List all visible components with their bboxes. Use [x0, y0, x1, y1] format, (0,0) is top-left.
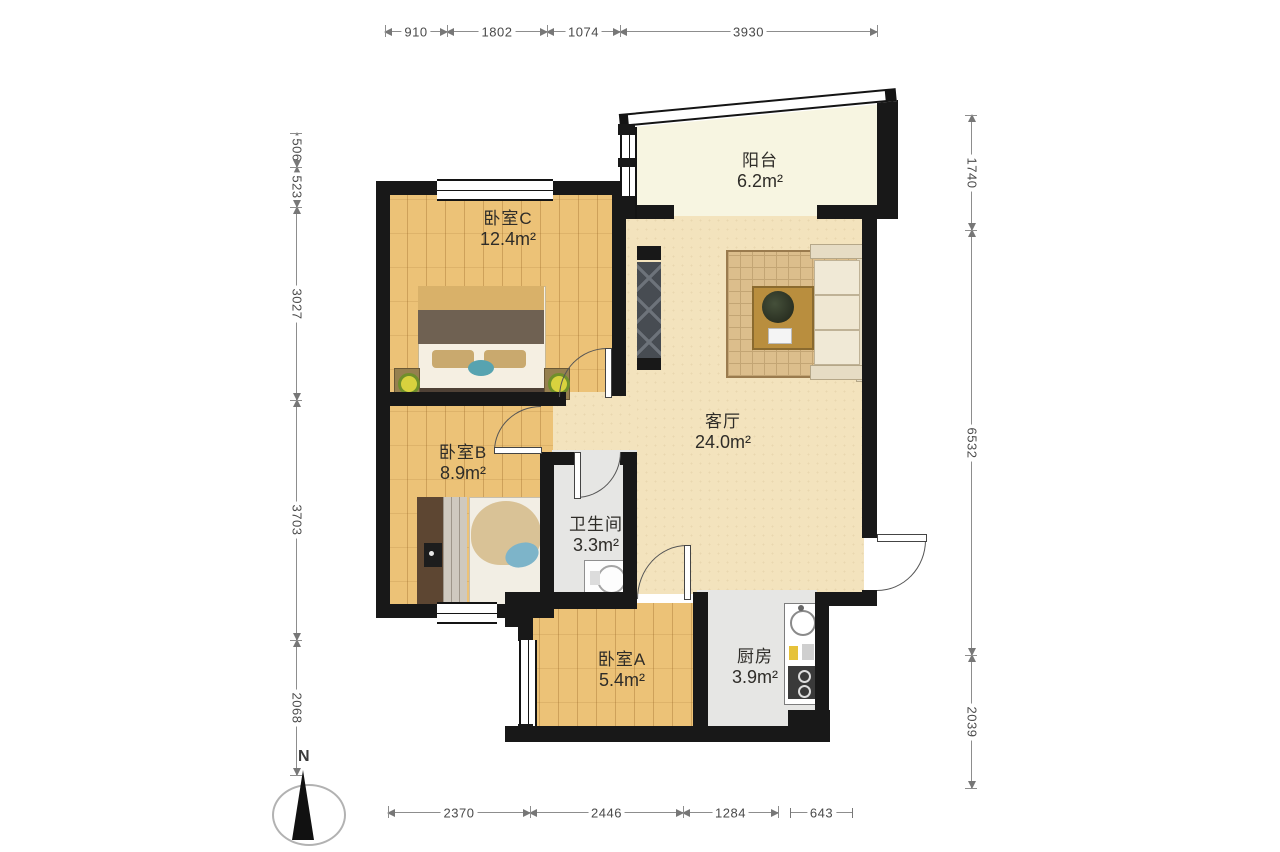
floor-plan: 阳台 6.2m² 卧室C 12.4m² 客厅 24.0m² 卧室B 8.9m² … — [0, 0, 1280, 852]
dim-left-3: 3027 — [296, 207, 297, 400]
dim-tick — [965, 115, 977, 116]
dim-label: 1802 — [479, 25, 516, 40]
wall-bath-top-left — [540, 452, 574, 465]
dim-top-2: 1802 — [447, 31, 547, 32]
wall-bedc-bottom — [376, 392, 566, 406]
decor — [468, 360, 494, 376]
wall-bath-right — [623, 452, 637, 609]
room-name: 客厅 — [695, 407, 751, 432]
entry-door-arc — [877, 540, 926, 591]
dim-right-3: 2039 — [971, 655, 972, 788]
dim-label: 643 — [807, 806, 836, 821]
decor — [810, 244, 864, 259]
dim-right-2: 6532 — [971, 230, 972, 655]
room-label-balcony: 阳台 6.2m² — [737, 146, 783, 192]
room-name: 卧室C — [480, 204, 536, 229]
dim-tick — [290, 167, 302, 168]
compass: N — [270, 748, 344, 846]
dim-tick — [778, 806, 779, 818]
room-area: 5.4m² — [598, 670, 646, 691]
dim-tick — [547, 25, 548, 37]
decor — [802, 644, 814, 660]
dim-bottom-3: 1284 — [683, 812, 778, 813]
dim-tick — [388, 806, 389, 818]
room-area: 6.2m² — [737, 171, 783, 192]
wall-bedc-top-left — [376, 181, 437, 195]
dim-tick — [290, 133, 302, 134]
room-area: 12.4m² — [480, 229, 536, 250]
room-name: 阳台 — [737, 146, 783, 171]
room-area: 24.0m² — [695, 432, 751, 453]
decor — [798, 685, 811, 698]
wall-living-right — [862, 205, 877, 538]
wall-kitchen-right — [815, 592, 829, 714]
wall-living-top-left-seg — [634, 205, 674, 219]
wall-bedb-right-stub — [540, 392, 554, 406]
room-label-bedroom-b: 卧室B 8.9m² — [439, 438, 487, 484]
dim-bottom-2: 2446 — [530, 812, 683, 813]
compass-label-north: N — [298, 748, 310, 766]
balcony-window-cap-mid — [618, 158, 635, 167]
tv-wall-pier-bottom — [637, 358, 661, 370]
room-label-bathroom: 卫生间 3.3m² — [569, 510, 623, 556]
dim-tick — [447, 25, 448, 37]
dim-label: 1740 — [965, 154, 980, 191]
dim-label: 6532 — [965, 424, 980, 461]
decor — [590, 571, 600, 585]
dim-label: 2039 — [965, 703, 980, 740]
wall-living-right-lower — [862, 590, 877, 606]
dim-bottom-1: 2370 — [388, 812, 530, 813]
wall-kitchen-bottom — [693, 726, 793, 742]
plant — [762, 291, 794, 323]
bedroom-a-door-leaf — [684, 545, 691, 600]
room-area: 3.3m² — [569, 535, 623, 556]
dim-label: 3703 — [290, 502, 305, 539]
wall-beda-left-upper — [518, 605, 533, 641]
balcony-window-cap-bottom — [618, 196, 635, 219]
dim-tick — [965, 788, 977, 789]
room-label-bedroom-a: 卧室A 5.4m² — [598, 645, 646, 691]
bedroom-a-window — [519, 640, 537, 726]
table-tray — [768, 328, 792, 344]
tv-cabinet — [637, 262, 661, 358]
bedroom-b-door-leaf — [494, 447, 542, 454]
dim-label: 2068 — [290, 689, 305, 726]
tv-wall-pier-top — [637, 246, 661, 260]
bedroom-c-door-leaf — [605, 348, 612, 398]
dim-label: 2370 — [441, 806, 478, 821]
dim-tick — [965, 655, 977, 656]
room-area: 8.9m² — [439, 463, 487, 484]
dim-label: 506 — [290, 135, 305, 164]
dim-label: 3027 — [290, 285, 305, 322]
wall-beda-bottom — [505, 726, 698, 742]
decor — [814, 260, 860, 295]
dim-tick — [965, 230, 977, 231]
dim-label: 910 — [401, 25, 430, 40]
decor — [597, 565, 626, 594]
dim-tick — [290, 207, 302, 208]
bedroom-c-window — [437, 179, 553, 201]
room-label-bedroom-c: 卧室C 12.4m² — [480, 204, 536, 250]
stove — [788, 666, 816, 699]
dim-tick — [877, 25, 878, 37]
dim-top-4: 3930 — [620, 31, 877, 32]
bedroom-c-bed — [418, 286, 544, 404]
room-name: 厨房 — [732, 642, 778, 667]
wall-kitchen-left — [693, 592, 708, 742]
dim-tick — [683, 806, 684, 818]
decor — [810, 365, 864, 380]
dim-tick — [290, 640, 302, 641]
dim-label: 2446 — [588, 806, 625, 821]
dim-label: 1074 — [565, 25, 602, 40]
sink — [790, 610, 816, 636]
decor — [418, 310, 544, 344]
decor — [789, 646, 798, 660]
room-name: 卧室A — [598, 645, 646, 670]
compass-needle-icon — [292, 770, 314, 840]
decor — [814, 330, 860, 365]
dim-label: 523 — [290, 172, 305, 201]
decor — [443, 497, 467, 605]
bedroom-b-window — [437, 602, 497, 624]
dim-label: 3930 — [730, 25, 767, 40]
room-label-living: 客厅 24.0m² — [695, 407, 751, 453]
dim-left-1: 506 — [296, 133, 297, 167]
bathroom-door-leaf — [574, 452, 581, 499]
decor — [798, 670, 811, 683]
dim-bottom-4: 643 — [790, 812, 853, 813]
dim-top-3: 1074 — [547, 31, 620, 32]
wall-kitchen-corner — [788, 710, 830, 742]
decor — [429, 551, 434, 556]
dim-top-1: 910 — [385, 31, 447, 32]
room-name: 卧室B — [439, 438, 487, 463]
decor — [418, 286, 544, 310]
dim-left-4: 3703 — [296, 400, 297, 640]
entry-door-leaf — [877, 534, 927, 542]
room-name: 卫生间 — [569, 510, 623, 535]
bedroom-b-bed — [469, 497, 545, 607]
balcony-window-cap-top — [618, 124, 635, 135]
decor — [798, 605, 804, 611]
wall-bedb-bottom-left — [376, 604, 437, 618]
room-label-kitchen: 厨房 3.9m² — [732, 642, 778, 688]
dim-tick — [290, 400, 302, 401]
room-area: 3.9m² — [732, 667, 778, 688]
wall-living-top-right-seg — [817, 205, 877, 219]
decor — [814, 295, 860, 330]
dim-tick — [530, 806, 531, 818]
dim-right-1: 1740 — [971, 115, 972, 230]
dim-tick — [385, 25, 386, 37]
bedroom-b-wardrobe — [417, 497, 467, 605]
wall-balcony-right — [877, 100, 898, 219]
dim-tick — [620, 25, 621, 37]
dim-label: 1284 — [712, 806, 749, 821]
dim-left-2: 523 — [296, 167, 297, 207]
